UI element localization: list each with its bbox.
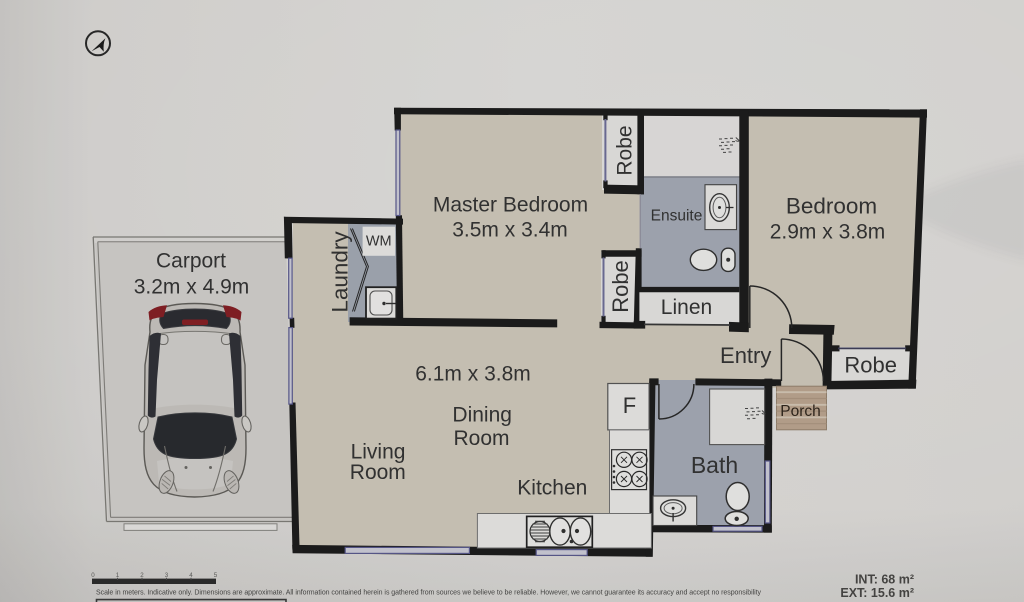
svg-text:Linen: Linen xyxy=(661,296,712,319)
svg-text:3.5m x 3.4m: 3.5m x 3.4m xyxy=(452,219,568,242)
svg-text:Room: Room xyxy=(350,461,406,484)
svg-text:WM: WM xyxy=(366,234,392,250)
svg-text:EXT: 15.6 m²: EXT: 15.6 m² xyxy=(840,586,914,600)
svg-text:Robe: Robe xyxy=(844,353,897,378)
svg-text:Robe: Robe xyxy=(608,260,633,313)
svg-text:Ensuite: Ensuite xyxy=(651,208,703,225)
svg-text:6.1m x 3.8m: 6.1m x 3.8m xyxy=(415,363,531,386)
svg-text:Scale in meters. Indicative on: Scale in meters. Indicative only. Dimens… xyxy=(96,590,762,597)
svg-text:5: 5 xyxy=(214,572,218,579)
svg-text:Laundry: Laundry xyxy=(328,231,353,313)
svg-text:0: 0 xyxy=(91,572,95,579)
svg-text:Carport: Carport xyxy=(156,250,226,273)
svg-text:2.9m x 3.8m: 2.9m x 3.8m xyxy=(770,221,886,244)
svg-text:Entry: Entry xyxy=(720,343,771,368)
svg-text:Room: Room xyxy=(453,427,509,450)
svg-text:F: F xyxy=(623,393,636,418)
svg-text:Master Bedroom: Master Bedroom xyxy=(433,194,588,217)
svg-text:Bath: Bath xyxy=(691,452,738,478)
svg-text:Bedroom: Bedroom xyxy=(786,194,877,219)
svg-text:Robe: Robe xyxy=(614,125,637,175)
svg-text:Kitchen: Kitchen xyxy=(517,477,587,500)
svg-text:Porch: Porch xyxy=(780,403,821,420)
svg-text:Dining: Dining xyxy=(452,404,512,427)
svg-text:INT: 68 m²: INT: 68 m² xyxy=(855,573,914,587)
svg-text:3.2m x 4.9m: 3.2m x 4.9m xyxy=(134,276,250,299)
